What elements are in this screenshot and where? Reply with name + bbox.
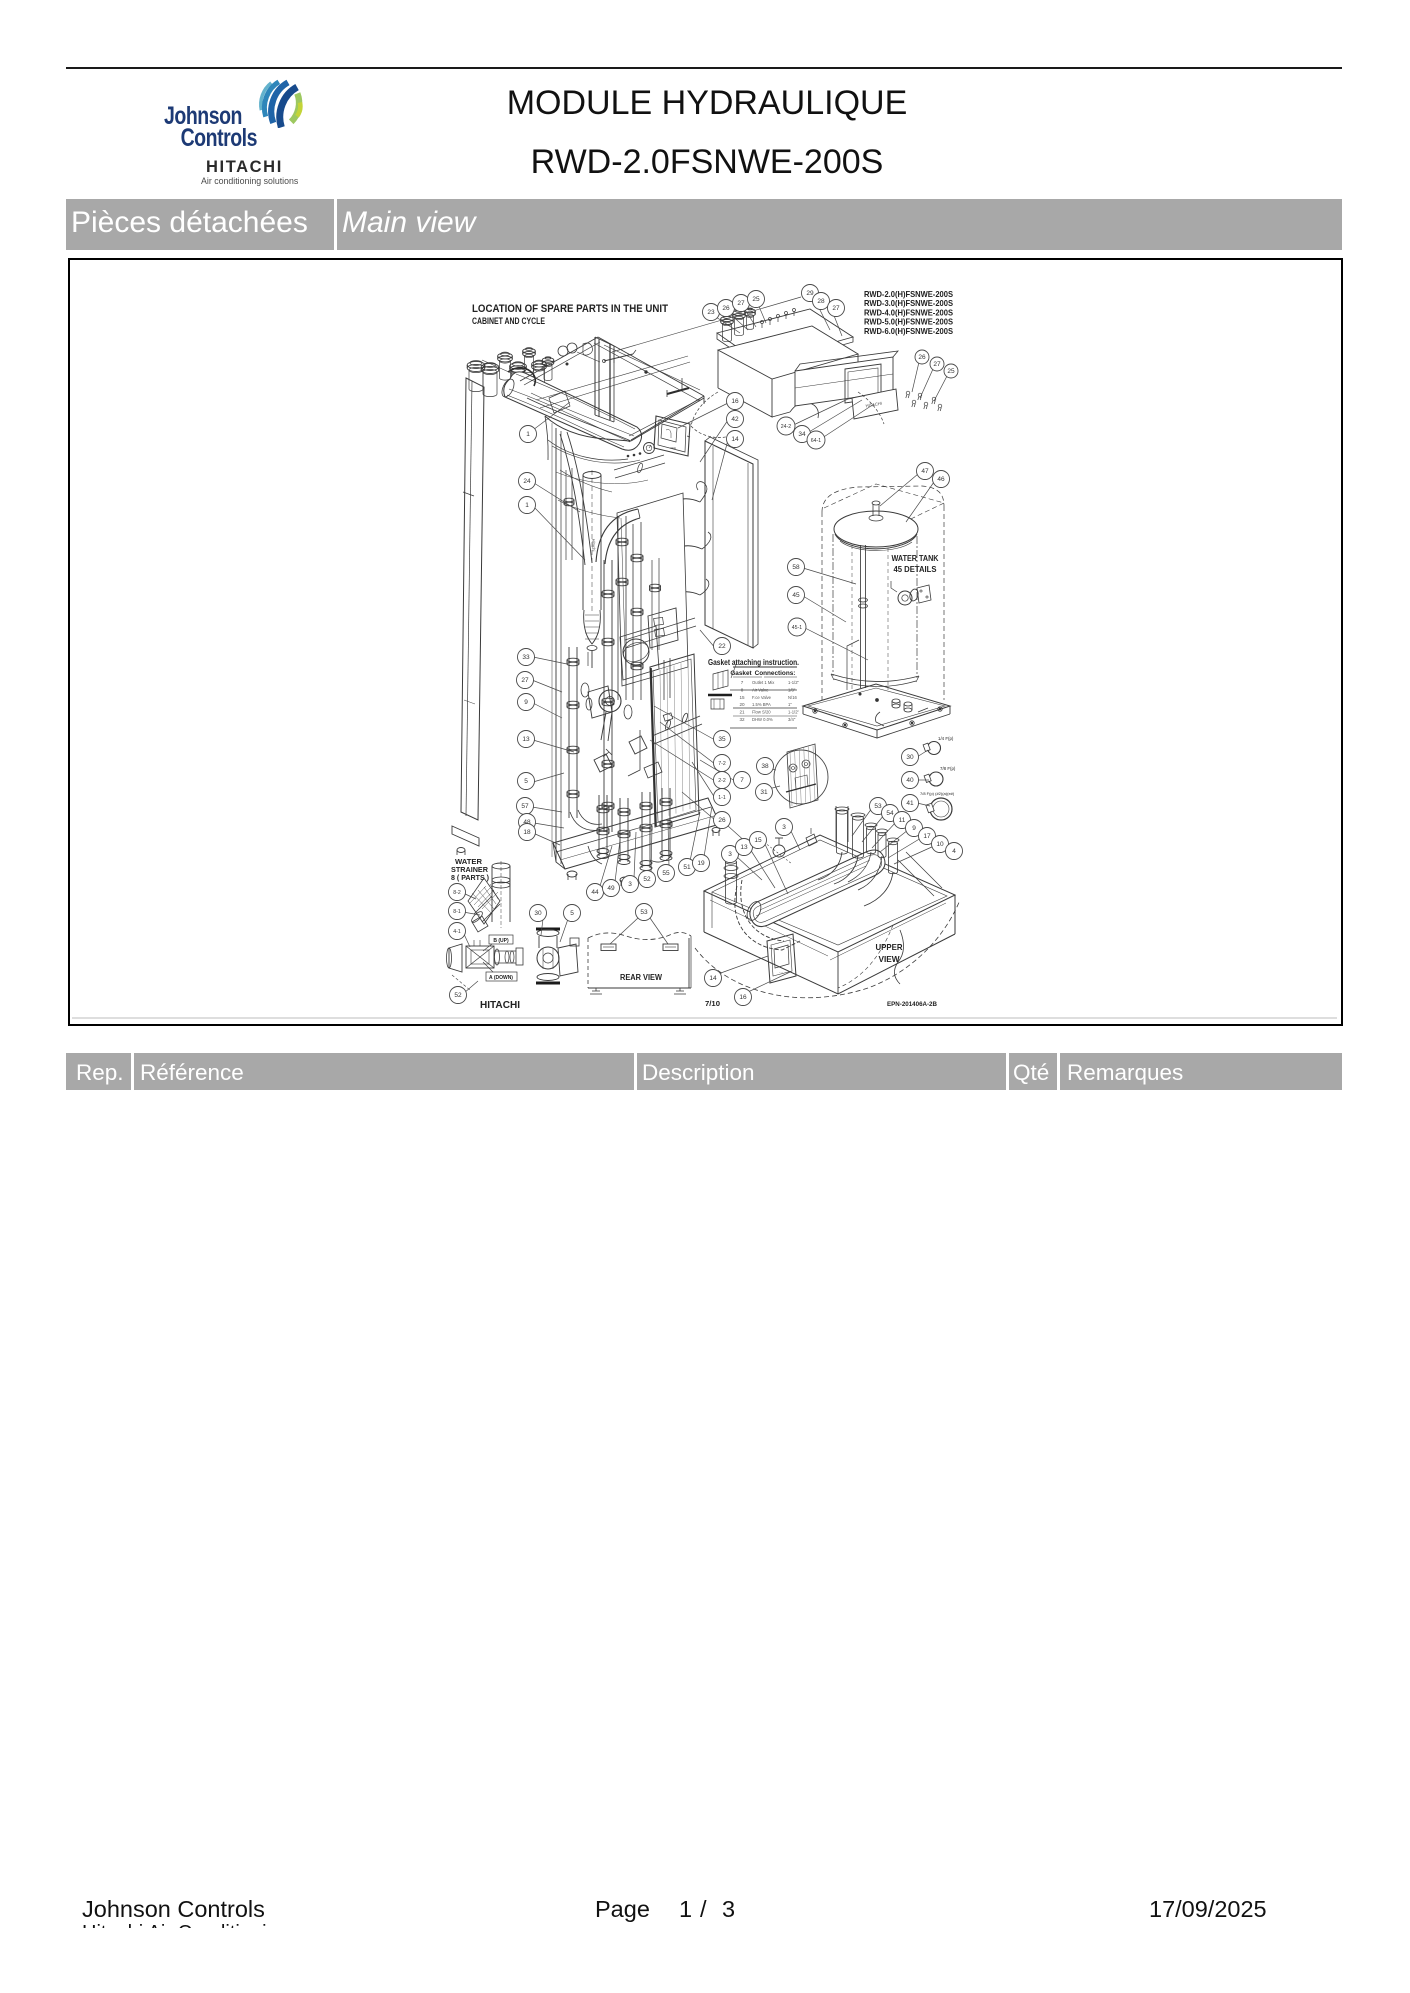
svg-text:55: 55 [662,870,670,877]
svg-text:14: 14 [709,975,717,982]
svg-text:LOCATION OF SPARE PARTS IN THE: LOCATION OF SPARE PARTS IN THE UNIT [472,303,668,315]
svg-text:30: 30 [906,754,914,761]
svg-text:27: 27 [933,361,941,368]
svg-text:10: 10 [936,841,944,848]
svg-text:Flow S/20: Flow S/20 [752,710,771,715]
svg-text:26: 26 [722,305,730,312]
svg-text:64-1: 64-1 [811,438,821,444]
svg-text:B (UP): B (UP) [493,938,509,944]
svg-text:31: 31 [760,789,768,796]
svg-text:13: 13 [740,844,748,851]
svg-text:40: 40 [906,777,914,784]
svg-text:···: ··· [779,970,783,975]
svg-text:47: 47 [921,468,929,475]
svg-text:15: 15 [754,837,762,844]
svg-text:1-1/2": 1-1/2" [788,680,800,685]
svg-text:7: 7 [740,777,744,784]
svg-text:1/4 F(p): 1/4 F(p) [938,736,954,741]
svg-text:N/16: N/16 [788,695,798,700]
svg-text:UPPER: UPPER [876,942,903,952]
svg-text:7: 7 [741,680,744,685]
svg-text:CABINET AND CYCLE: CABINET AND CYCLE [472,316,545,326]
svg-text:44: 44 [591,889,599,896]
svg-text:1: 1 [526,431,530,438]
svg-text:27: 27 [521,677,529,684]
svg-text:16: 16 [739,994,747,1001]
svg-text:24-2: 24-2 [781,424,791,430]
svg-text:18: 18 [523,829,531,836]
svg-text:57: 57 [521,803,529,810]
svg-text:41: 41 [906,800,914,807]
svg-text:EPN-201406A-2B: EPN-201406A-2B [887,1001,937,1008]
svg-text:17: 17 [923,833,931,840]
svg-text:35: 35 [718,736,726,743]
svg-text:11: 11 [899,817,906,824]
svg-text:5: 5 [524,778,528,785]
svg-text:53: 53 [640,909,648,916]
svg-text:Gasket attaching instruction.: Gasket attaching instruction. [708,658,799,667]
svg-text:46: 46 [937,476,945,483]
svg-text:53: 53 [874,803,882,810]
svg-text:33: 33 [522,654,530,661]
svg-text:20: 20 [739,702,745,707]
svg-text:9: 9 [524,699,528,706]
svg-text:1: 1 [525,502,529,509]
svg-text:25: 25 [947,368,955,375]
svg-text:1-1: 1-1 [718,795,726,801]
svg-text:26: 26 [918,354,926,361]
svg-text:7/10: 7/10 [705,1001,720,1008]
svg-text:3/4": 3/4" [788,717,796,722]
svg-text:WATER TANK: WATER TANK [892,553,940,563]
svg-text:9: 9 [912,825,916,832]
svg-text:34: 34 [798,431,806,438]
svg-text:RWD-4.0(H)FSNWE-200S: RWD-4.0(H)FSNWE-200S [864,308,953,317]
svg-text:RWD-3.0(H)FSNWE-200S: RWD-3.0(H)FSNWE-200S [864,299,953,308]
svg-text:22: 22 [718,643,726,650]
svg-text:27: 27 [737,300,745,307]
svg-text:45: 45 [792,592,800,599]
svg-text:4: 4 [952,848,956,855]
svg-text:1-1/2": 1-1/2" [788,710,800,715]
svg-text:30: 30 [534,910,542,917]
svg-text:15: 15 [739,695,745,700]
svg-text:1": 1" [788,702,792,707]
svg-text:8-1: 8-1 [453,909,461,915]
svg-text:RWD-6.0(H)FSNWE-200S: RWD-6.0(H)FSNWE-200S [864,327,953,336]
svg-text:16: 16 [731,398,739,405]
svg-text:26: 26 [718,817,726,824]
svg-text:51: 51 [683,864,691,871]
svg-text:27: 27 [832,305,840,312]
svg-text:13: 13 [522,736,530,743]
svg-text:45 DETAILS: 45 DETAILS [894,564,937,574]
svg-text:4-1: 4-1 [453,929,461,935]
svg-text:52: 52 [454,992,462,999]
svg-text:F.ce Valve: F.ce Valve [752,695,772,700]
svg-text:3: 3 [782,824,786,831]
svg-text:HITACHI: HITACHI [480,999,520,1011]
svg-text:7/8 F(p): 7/8 F(p) [940,766,956,771]
svg-text:8-2: 8-2 [453,890,461,896]
svg-text:52: 52 [643,876,651,883]
svg-text:54: 54 [886,810,894,817]
svg-text:45-1: 45-1 [792,625,802,631]
svg-text:●●●: ●●● [670,446,676,450]
svg-text:58: 58 [792,564,800,571]
svg-text:23: 23 [707,309,715,316]
svg-text:32: 32 [739,717,745,722]
svg-text:Hitachi: Hitachi [591,539,596,552]
svg-text:3: 3 [728,851,732,858]
svg-text:2-2: 2-2 [718,778,726,784]
svg-text:RWD-2.0(H)FSNWE-200S: RWD-2.0(H)FSNWE-200S [864,290,953,299]
svg-text:42: 42 [731,416,739,423]
svg-text:29: 29 [806,290,814,297]
svg-text:5: 5 [570,910,574,917]
svg-text:25: 25 [752,296,760,303]
svg-text:RWD-5.0(H)FSNWE-200S: RWD-5.0(H)FSNWE-200S [864,318,953,327]
svg-text:8 ( PARTS ): 8 ( PARTS ) [451,873,490,882]
svg-text:24: 24 [523,478,531,485]
svg-text:28: 28 [817,298,825,305]
svg-text:19: 19 [697,860,705,867]
svg-text:Connections:: Connections: [755,670,796,677]
svg-text:7-2: 7-2 [718,761,726,767]
svg-text:7/8 F(p) (#2)(a)(e#): 7/8 F(p) (#2)(a)(e#) [920,791,955,796]
svg-text:DHW 0.0%: DHW 0.0% [752,717,773,722]
svg-text:REAR VIEW: REAR VIEW [620,972,663,982]
svg-text:Outlet 1 Mix: Outlet 1 Mix [752,680,775,685]
svg-text:VIEW: VIEW [879,954,900,964]
svg-text:3: 3 [628,881,632,888]
svg-text:A (DOWN): A (DOWN) [489,975,513,981]
svg-text:38: 38 [761,763,769,770]
svg-text:49: 49 [607,885,615,892]
svg-text:1.5% BPA: 1.5% BPA [752,702,771,707]
svg-text:21: 21 [739,710,745,715]
svg-text:14: 14 [731,436,739,443]
